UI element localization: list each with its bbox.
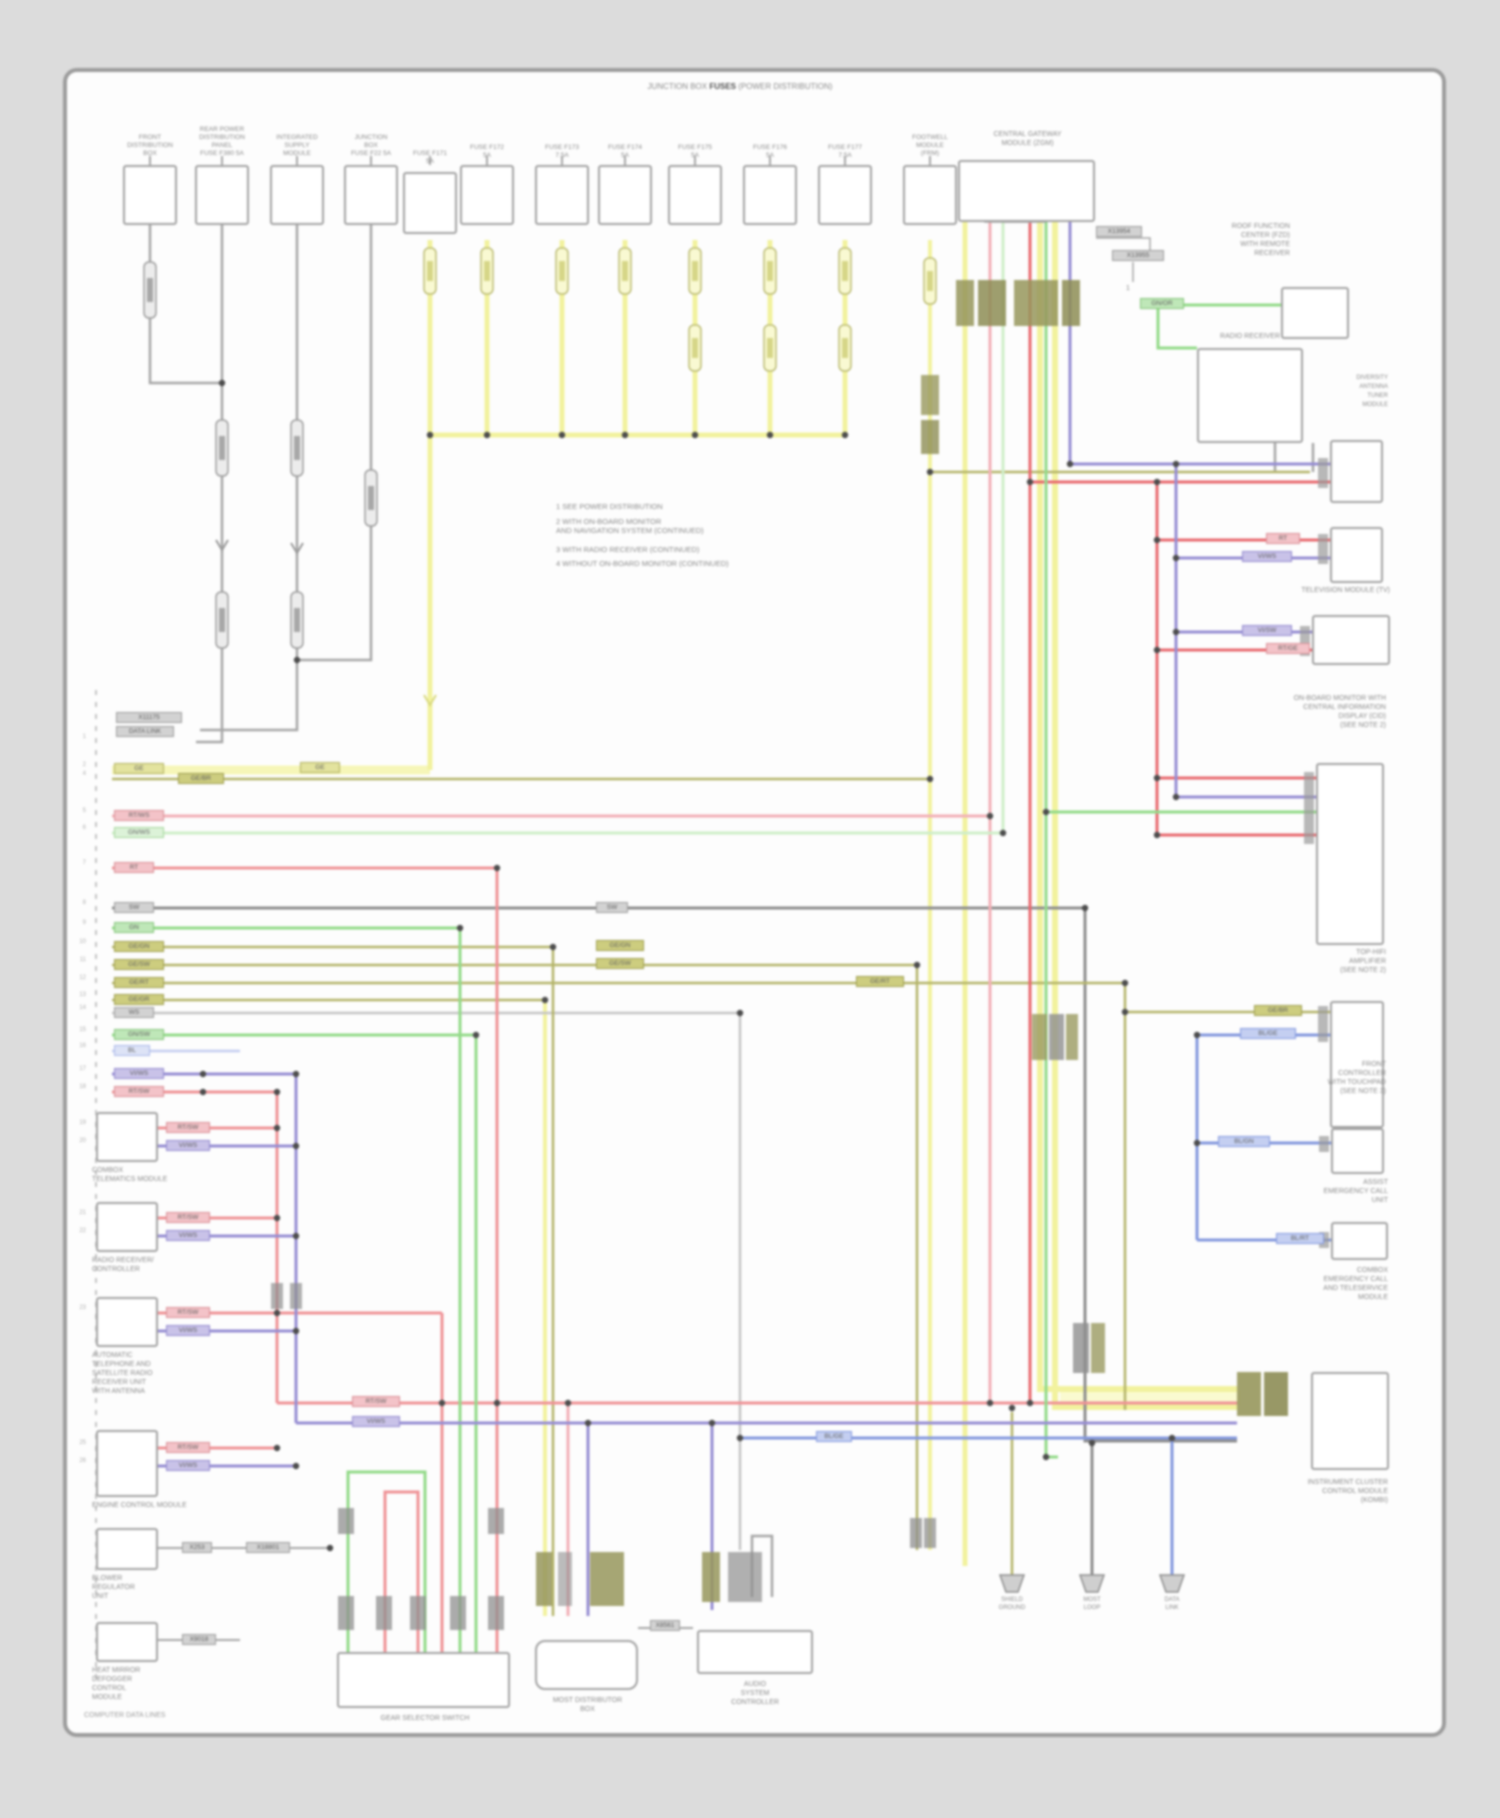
- junction-box-bracket-label: JUNCTION BOX FUSES (POWER DISTRIBUTION): [560, 82, 920, 91]
- wire-tag: BL/GE: [1240, 1028, 1296, 1039]
- dlc-pin-number: 17: [72, 1066, 86, 1072]
- gateway-label: CENTRAL GATEWAY MODULE (ZGM): [950, 130, 1105, 148]
- dlc-pin-number: 19: [72, 1120, 86, 1126]
- right-label-rh-side: FRONT CONTROLLER WITH TOUCHPAD (SEE NOTE…: [1280, 1060, 1386, 1096]
- right-module-rc-box: [1330, 440, 1383, 503]
- dlc-pin-number: 1: [72, 734, 86, 740]
- splice-1-label: SHIELD GROUND: [987, 1596, 1037, 1612]
- left-module-2-label: RADIO RECEIVER/ CONTROLLER: [92, 1256, 252, 1274]
- wire-tag: X11175: [116, 712, 182, 723]
- left-module-5-box: [96, 1528, 158, 1570]
- gateway-module-box: [958, 160, 1095, 222]
- left-module-4-box: [96, 1430, 158, 1497]
- wire-tag: RT/SW: [166, 1212, 210, 1223]
- dlc-pin-number: 13: [72, 992, 86, 998]
- note-3: 3 WITH RADIO RECEIVER (CONTINUED): [556, 545, 976, 554]
- wire-tag: RT/SW: [114, 1086, 164, 1097]
- dlc-pin-number: 14: [72, 1005, 86, 1011]
- wire-tag: RT/SW: [166, 1122, 210, 1133]
- wire-tag: GE/BR: [178, 773, 224, 784]
- wire-tag: BL/GE: [816, 1431, 852, 1442]
- wire-tag: VI/WS: [166, 1230, 210, 1241]
- wire-tag: GE/SW: [596, 958, 644, 969]
- wire-tag: X13955: [1112, 250, 1164, 261]
- wire-tag: BL/RT: [1276, 1233, 1324, 1244]
- wire-tag: GE: [114, 763, 164, 774]
- right-label-ri-below: COMBOX EMERGENCY CALL AND TELESERVICE MO…: [1262, 1266, 1388, 1302]
- wire-tag: VI/WS: [352, 1416, 400, 1427]
- wire-tag: GE: [300, 762, 340, 773]
- dlc-pin-number: 21: [72, 1210, 86, 1216]
- dlc-pin-number: 15: [72, 1027, 86, 1033]
- wire-tag: GE/RT: [114, 977, 164, 988]
- top-label-11: FUSE F177 7.5A: [799, 102, 891, 160]
- wire-tag: BL/GN: [1218, 1136, 1270, 1147]
- right-label-rb-side: DIVERSITY ANTENNA TUNER MODULE: [1330, 374, 1388, 410]
- right-label-ri-above: ASSIST EMERGENCY CALL UNIT: [1300, 1178, 1388, 1205]
- wire-tag: X8561: [650, 1620, 680, 1631]
- wire-tag: GE/GR: [114, 994, 164, 1005]
- dlc-pin-number: 26: [72, 1458, 86, 1464]
- wire-tag: GN/OR: [1140, 298, 1184, 309]
- dlc-pin-number: 6: [72, 825, 86, 831]
- top-connector-12: [903, 165, 957, 225]
- wire-tag: BL: [114, 1045, 150, 1056]
- wire-tag: X253: [182, 1542, 212, 1553]
- wire-tag: GE/SW: [114, 959, 164, 970]
- left-module-4-label: ENGINE CONTROL MODULE: [92, 1501, 272, 1510]
- splice-3-label: DATA LINK: [1147, 1596, 1197, 1612]
- wire-tag: VI/SW: [1242, 625, 1292, 636]
- dlc-pin-number: 7: [72, 860, 86, 866]
- wire-tag: RT/SW: [352, 1396, 400, 1407]
- wire-tag: RT: [114, 862, 154, 873]
- wire-tag: GE/RT: [856, 976, 904, 987]
- wire-tag: VI/WS: [1242, 551, 1292, 562]
- left-module-1-box: [96, 1112, 158, 1162]
- right-module-ri-box: [1331, 1222, 1388, 1260]
- note-4: 4 WITHOUT ON-BOARD MONITOR (CONTINUED): [556, 559, 976, 568]
- dlc-pin-number: 23: [72, 1305, 86, 1311]
- right-label-rg-above: ON-BOARD MONITOR WITH CENTRAL INFORMATIO…: [1180, 694, 1386, 730]
- dlc-pin-number: 12: [72, 975, 86, 981]
- top-label-12: FOOTWELL MODULE (FRM): [884, 94, 976, 158]
- dlc-pin-number: 18: [72, 1084, 86, 1090]
- right-module-rd-box: [1330, 527, 1383, 583]
- wire-tag: VI/WS: [166, 1460, 210, 1471]
- bottom-module-2-label: MOST DISTRIBUTOR BOX: [540, 1696, 635, 1714]
- dlc-pin-number: 8: [72, 900, 86, 906]
- top-connector-6: [460, 165, 514, 225]
- wire-tag: GE/GN: [596, 940, 644, 951]
- wire-tag: GN: [114, 922, 154, 933]
- wire-tag: GN/SW: [114, 1029, 164, 1040]
- wire-tag: SW: [596, 902, 628, 913]
- wire-tag: X13954: [1096, 226, 1142, 237]
- wire-tag: DATA LINK: [116, 726, 174, 737]
- bottom-module-2-box: [535, 1640, 638, 1690]
- left-module-6-label: HEAT MIRROR DEFOGGER CONTROL MODULE: [92, 1666, 222, 1702]
- right-module-rh-box: [1331, 1128, 1384, 1174]
- wire-tag: X9018: [182, 1634, 216, 1645]
- top-connector-9: [668, 165, 722, 225]
- wire-tag: RT/GE: [1266, 643, 1310, 654]
- left-module-3-label: AUTOMATIC TELEPHONE AND SATELLITE RADIO …: [92, 1351, 252, 1396]
- wire-tag: RT: [1266, 533, 1300, 544]
- wire-tag: GN/WS: [114, 827, 164, 838]
- top-connector-10: [743, 165, 797, 225]
- right-module-rf-box: [1316, 763, 1384, 945]
- dlc-pin-number: 9: [72, 920, 86, 926]
- right-module-rb-box: [1197, 348, 1303, 443]
- wire-tag: SW: [114, 902, 154, 913]
- right-label-rf: TOP-HIFI AMPLIFIER (SEE NOTE 2): [1206, 948, 1386, 975]
- bottom-module-3-box: [697, 1630, 813, 1674]
- bottom-module-1-label: GEAR SELECTOR SWITCH: [350, 1714, 500, 1723]
- dlc-pin-number: 11: [72, 957, 86, 963]
- wire-tag: RT/WS: [114, 810, 164, 821]
- left-module-6-box: [96, 1622, 158, 1662]
- wire-tag: GE/GN: [114, 941, 164, 952]
- top-connector-7: [535, 165, 589, 225]
- dlc-pin-number: 4: [72, 771, 86, 777]
- wire-tag: WS: [114, 1007, 154, 1018]
- dlc-pin-number: 25: [72, 1440, 86, 1446]
- dlc-pin-number: 5: [72, 808, 86, 814]
- wire-tag: RT/SW: [166, 1307, 210, 1318]
- dlc-pin-number: 10: [72, 939, 86, 945]
- wiring-diagram-stage: FRONT DISTRIBUTION BOX REAR POWER DISTRI…: [0, 0, 1500, 1818]
- right-module-rj-box: [1311, 1372, 1389, 1470]
- dlc-pin-number: 22: [72, 1228, 86, 1234]
- note-2: 2 WITH ON-BOARD MONITOR AND NAVIGATION S…: [556, 517, 976, 535]
- diagram-title-footer: COMPUTER DATA LINES: [84, 1712, 165, 1719]
- left-module-2-box: [96, 1202, 158, 1252]
- right-module-re-box: [1312, 615, 1390, 665]
- wire-tag: VI/WS: [166, 1140, 210, 1151]
- splice-2-label: MOST LOOP: [1067, 1596, 1117, 1612]
- right-label-rj-below: INSTRUMENT CLUSTER CONTROL MODULE (KOMBI…: [1282, 1478, 1388, 1505]
- wire-tag: VI/WS: [166, 1325, 210, 1336]
- dlc-pin-number: 20: [72, 1138, 86, 1144]
- dlc-pin-number: 16: [72, 1043, 86, 1049]
- wire-tag: GE/BR: [1254, 1005, 1302, 1016]
- right-label-ra: ROOF FUNCTION CENTER (FZD) WITH REMOTE R…: [1150, 222, 1290, 258]
- note-1: 1 SEE POWER DISTRIBUTION: [556, 502, 976, 511]
- wire-tag: RT/SW: [166, 1442, 210, 1453]
- left-module-5-label: BLOWER REGULATOR UNIT: [92, 1574, 222, 1601]
- wire-tag: X18801: [246, 1542, 290, 1553]
- left-module-3-box: [96, 1297, 158, 1347]
- top-connector-2: [195, 165, 249, 225]
- wiring-svg: [0, 0, 1500, 1818]
- wire-tag: VI/WS: [114, 1068, 164, 1079]
- left-module-1-label: COMBOX TELEMATICS MODULE: [92, 1166, 252, 1184]
- dlc-pin-number: 2: [72, 762, 86, 768]
- top-connector-3: [270, 165, 324, 225]
- right-label-rb-title: RADIO RECEIVER: [1192, 332, 1308, 341]
- top-connector-8: [598, 165, 652, 225]
- bottom-module-3-label: AUDIO SYSTEM CONTROLLER: [700, 1680, 810, 1707]
- bottom-module-1-box: [337, 1652, 510, 1708]
- top-connector-1: [123, 165, 177, 225]
- antenna-pin-label: 1: [1126, 284, 1140, 293]
- top-connector-5: [403, 172, 457, 234]
- right-label-re: TELEVISION MODULE (TV): [1296, 586, 1390, 595]
- top-connector-4: [344, 165, 398, 225]
- top-connector-11: [818, 165, 872, 225]
